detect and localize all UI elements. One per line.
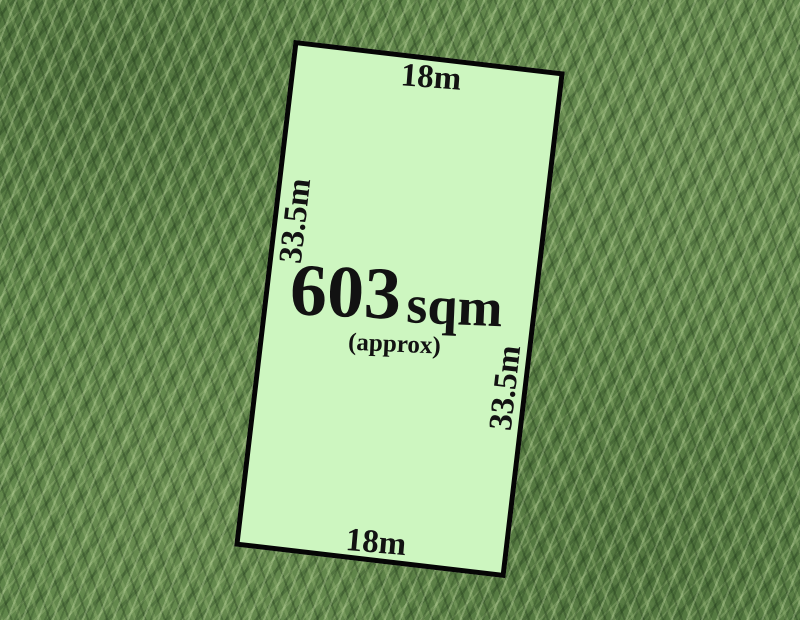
land-listing-graphic: 18m 33.5m 33.5m 18m 603 sqm (approx) [0,0,800,620]
area-unit: sqm [406,280,504,333]
area-label-group: 603 sqm (approx) [288,257,505,361]
top-dimension-label: 18m [400,59,463,97]
bottom-dimension-label: 18m [344,524,407,562]
area-value: 603 [289,257,403,328]
area-line: 603 sqm [289,257,505,333]
